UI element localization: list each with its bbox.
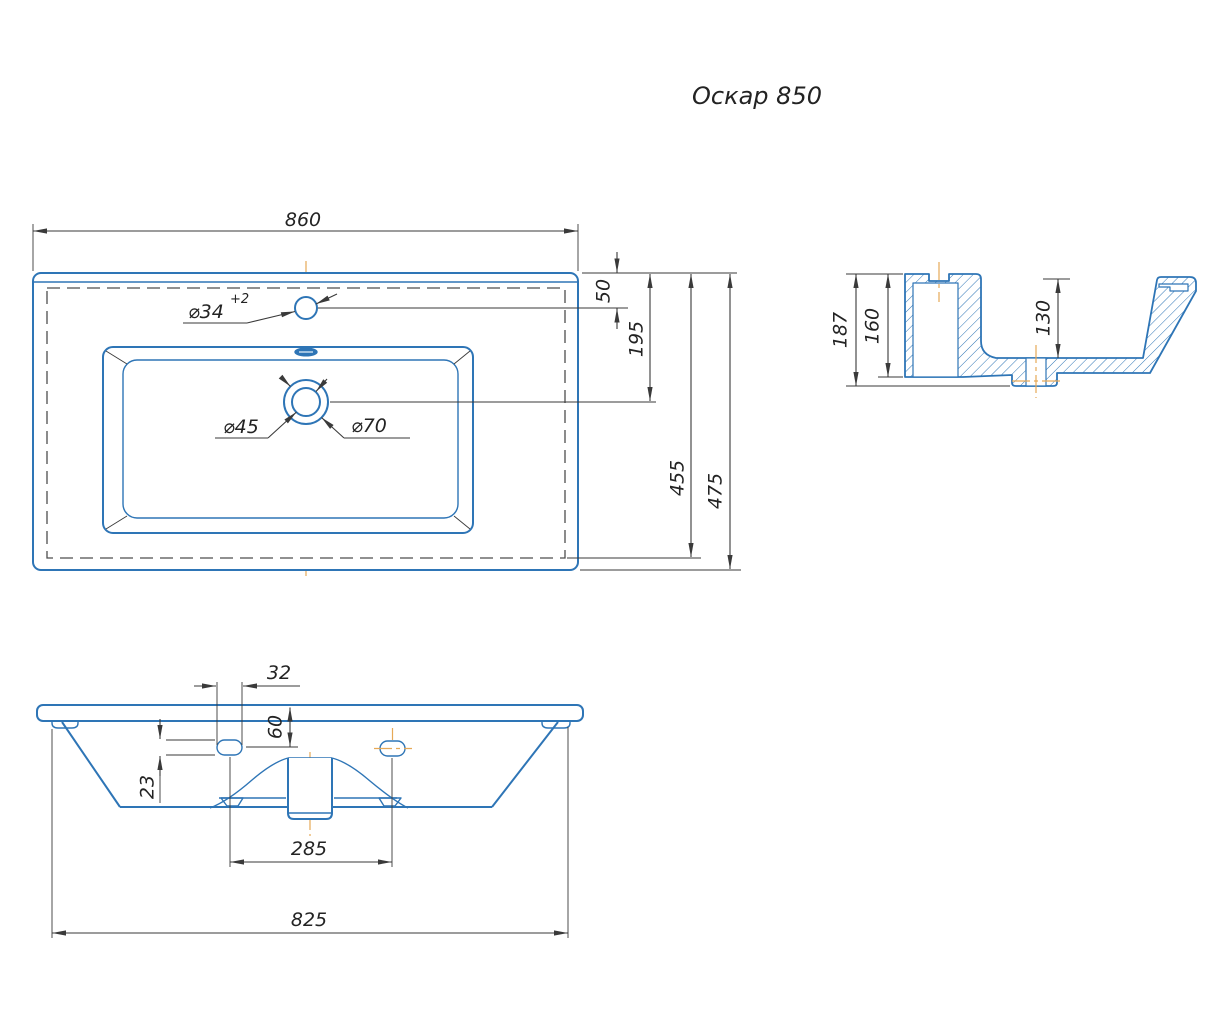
dim-50-label: 50	[593, 279, 615, 303]
drain-pipe-boss	[288, 758, 332, 819]
dim-187-label: 187	[830, 312, 852, 348]
dim-160: 160	[862, 274, 904, 377]
dim-23: 23	[137, 719, 216, 803]
side-section-view: 187 160 130	[830, 262, 1197, 398]
dim-23-label: 23	[137, 775, 159, 799]
drain-inner-label: ⌀45	[223, 416, 259, 438]
faucet-hole	[295, 297, 317, 319]
mounting-channel-void	[913, 283, 958, 377]
drawing-sheet: Оскар 850 ⌀34 +2 ⌀45	[0, 0, 1228, 1024]
dim-860-label: 860	[285, 209, 321, 231]
faucet-hole-tolerance: +2	[230, 292, 249, 307]
faucet-hole-label: ⌀34	[188, 301, 224, 323]
front-rim-bar	[37, 705, 583, 721]
dim-285-label: 285	[291, 838, 327, 860]
mounting-slot-right-centerlines	[374, 728, 412, 749]
dim-475: 475	[705, 274, 731, 569]
drawing-title: Оскар 850	[692, 82, 822, 110]
dim-130: 130	[1033, 279, 1071, 358]
drain-outer-label: ⌀70	[351, 415, 387, 437]
dim-50: 50	[593, 252, 618, 329]
dim-195: 195	[626, 274, 651, 401]
drain-arch-right	[332, 758, 408, 808]
dim-130-label: 130	[1033, 300, 1055, 336]
extension-lines	[166, 740, 215, 755]
mounting-slot-left	[217, 740, 242, 755]
technical-drawing: Оскар 850 ⌀34 +2 ⌀45	[0, 0, 1228, 1024]
dim-32-label: 32	[267, 662, 291, 684]
dim-455-label: 455	[667, 460, 689, 496]
dim-475-label: 475	[705, 473, 727, 509]
dim-60-label: 60	[265, 715, 287, 739]
dim-195-label: 195	[626, 321, 648, 357]
top-view: ⌀34 +2 ⌀45 ⌀70 860	[33, 209, 741, 576]
front-view: 32 60 23 285 825	[37, 662, 583, 938]
drain-arch-left	[210, 758, 288, 808]
dim-825-label: 825	[291, 909, 327, 931]
dim-160-label: 160	[862, 308, 884, 344]
dim-455: 455	[667, 274, 692, 557]
